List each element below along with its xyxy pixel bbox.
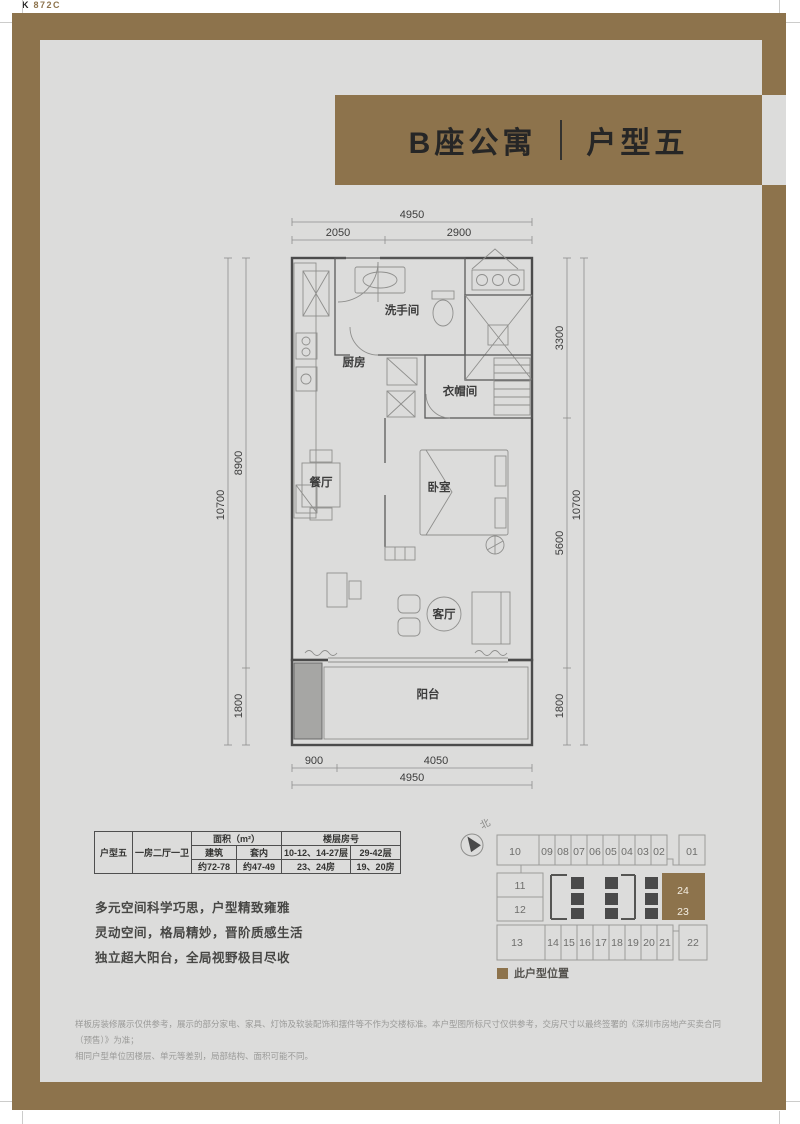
unit-15: 15 [563,937,575,949]
locator-bottom-row: 13 14 15 16 17 18 19 20 21 22 [497,925,707,960]
disclaimer-line-1: 样板房装修展示仅供参考，展示的部分家电、家具、灯饰及软装配饰和摆件等不作为交楼标… [75,1016,733,1048]
title-divider [560,120,562,160]
table-cell-unit-name: 户型五 [95,832,133,874]
table-header-floor: 楼层房号 [282,832,401,846]
living: 客厅 [305,547,510,656]
balcony: 阳台 [294,658,528,739]
unit-12: 12 [514,904,526,916]
unit-05: 05 [605,846,617,858]
building-title: B座公寓 [409,118,537,162]
dim-bottom-left: 900 [305,755,323,767]
unit-18: 18 [611,937,623,949]
dim-top-total: 4950 [400,209,424,221]
crop-mark [22,1111,23,1124]
dim-top-right: 2900 [447,227,471,239]
table-cell-area-val2: 约47-49 [237,860,282,874]
crop-mark [0,1101,12,1102]
unit-03: 03 [637,846,649,858]
north-compass-icon: 北 [461,817,492,856]
crop-mark [779,0,780,13]
room-label-dining: 餐厅 [309,475,333,489]
table-cell-floor-val2: 19、20房 [351,860,401,874]
unit-spec-table: 户型五 一房二厅一卫 面积（m²） 楼层房号 建筑 套内 10-12、14-27… [94,831,401,874]
closet: 衣帽间 [425,355,532,418]
print-code-letter: K [22,0,30,10]
room-label-bath: 洗手间 [385,303,420,317]
hall-cabinets [387,358,417,417]
dim-right-outer: 10700 [571,490,583,521]
crop-mark [786,22,800,23]
dim-right-mid: 5600 [554,531,566,555]
unit-01: 01 [686,846,698,858]
dimension-lines-left: 10700 8900 1800 [215,258,250,745]
dimension-lines-bottom: 900 4050 4950 [292,755,532,789]
legend-label: 此户型位置 [514,965,569,981]
floor-locator: 北 10 09 08 07 06 05 04 03 02 01 [455,815,715,965]
table-cell-floor-sub1: 10-12、14-27层 [282,846,351,860]
title-banner: B座公寓 户型五 [335,95,762,185]
unit-20: 20 [643,937,655,949]
print-code-number: 872C [34,0,62,10]
unit-14: 14 [547,937,559,949]
unit-11: 11 [515,880,526,892]
table-cell-layout: 一房二厅一卫 [133,832,192,874]
dim-right-top: 3300 [554,326,566,350]
bathroom: 洗手间 [335,258,465,355]
unit-09: 09 [541,846,553,858]
unit-22: 22 [687,937,699,949]
table-cell-floor-sub2: 29-42层 [351,846,401,860]
feature-text: 多元空间科学巧思，户型精致雍雅 灵动空间，格局精妙，晋阶质感生活 独立超大阳台，… [95,896,303,971]
table-cell-area-sub1: 建筑 [192,846,237,860]
unit-21: 21 [659,937,671,949]
shower-room [465,270,532,380]
floor-plan-walls [292,249,532,745]
unit-08: 08 [557,846,569,858]
unit-06: 06 [589,846,601,858]
table-header-area: 面积（m²） [192,832,282,846]
disclaimer-line-2: 相同户型单位因楼层、单元等差别，局部结构、面积可能不同。 [75,1048,733,1064]
unit-17: 17 [595,937,607,949]
room-label-kitchen: 厨房 [343,355,366,369]
room-label-balcony: 阳台 [417,687,440,701]
unit-10: 10 [509,846,521,858]
room-label-living: 客厅 [432,607,456,621]
locator-legend: 此户型位置 [497,965,569,981]
north-label: 北 [478,817,492,832]
unit-13: 13 [511,937,523,949]
feature-line-2: 灵动空间，格局精妙，晋阶质感生活 [95,921,303,946]
room-label-bedroom: 卧室 [428,480,451,494]
disclaimer-text: 样板房装修展示仅供参考，展示的部分家电、家具、灯饰及软装配饰和摆件等不作为交楼标… [75,1016,733,1064]
unit-07: 07 [573,846,585,858]
unit-19: 19 [627,937,639,949]
dimension-lines-top: 4950 2050 2900 [292,209,532,244]
crop-mark [22,0,23,13]
crop-mark [786,1101,800,1102]
dim-left-lower: 1800 [233,694,245,718]
dim-bottom-total: 4950 [400,772,424,784]
unit-04: 04 [621,846,633,858]
unit-02: 02 [653,846,665,858]
brochure-page: K872C B座公寓 户型五 4950 2050 2900 [0,0,800,1124]
crop-mark [0,22,12,23]
floor-plan: 4950 2050 2900 900 4050 4950 10700 [210,205,600,795]
unit-type-title: 户型五 [586,118,688,162]
table-cell-floor-val1: 23、24房 [282,860,351,874]
feature-line-1: 多元空间科学巧思，户型精致雍雅 [95,896,303,921]
banner-frame-gap [762,95,786,185]
dim-right-bottom: 1800 [554,694,566,718]
locator-middle: 11 12 24 23 [497,873,705,921]
bedroom: 卧室 [385,418,508,554]
dim-bottom-right: 4050 [424,755,448,767]
feature-line-3: 独立超大阳台，全局视野极目尽收 [95,946,303,971]
unit-23-highlight: 23 [677,906,689,918]
crop-mark [779,1111,780,1124]
dim-left-outer: 10700 [215,490,227,521]
table-cell-area-val1: 约72-78 [192,860,237,874]
unit-24-highlight: 24 [677,885,689,897]
unit-16: 16 [579,937,591,949]
print-code: K872C [22,0,61,10]
dimension-lines-right: 3300 5600 1800 10700 [554,258,588,745]
dim-left-upper: 8900 [233,451,245,475]
locator-top-row: 10 09 08 07 06 05 04 03 02 01 [497,835,705,873]
dim-top-left: 2050 [326,227,350,239]
table-cell-area-sub2: 套内 [237,846,282,860]
legend-color-swatch [497,968,508,979]
room-label-closet: 衣帽间 [443,384,478,398]
